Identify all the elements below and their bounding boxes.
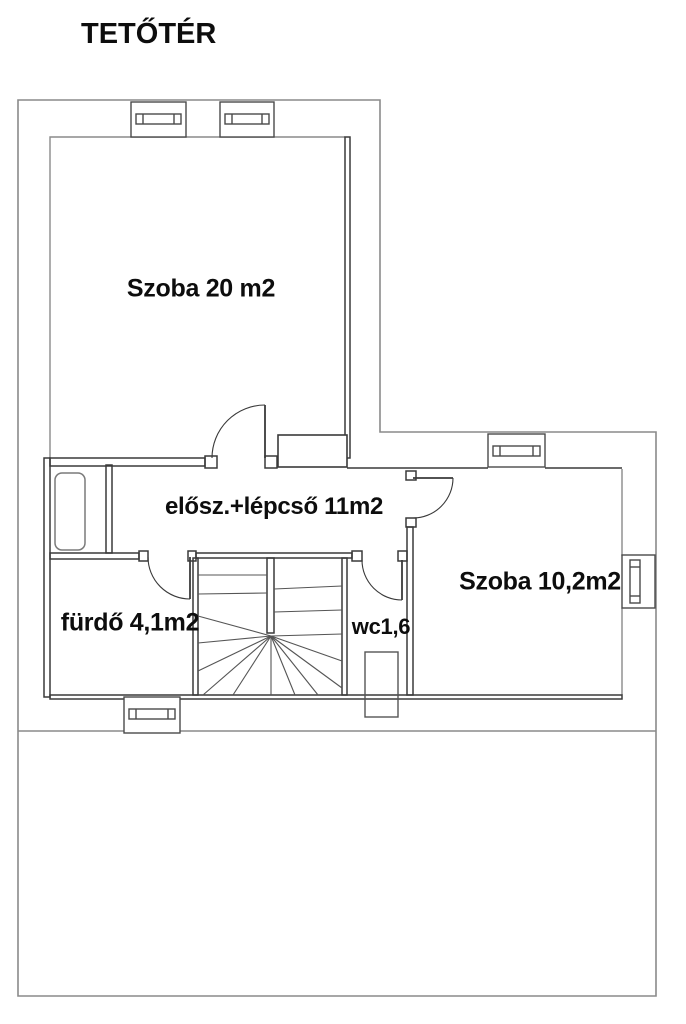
room-label-szoba102: Szoba 10,2m2 (459, 568, 621, 597)
roof-window-top-left (131, 102, 186, 137)
door-furdo (148, 557, 190, 599)
floor-plan: TETŐTÉR Szoba 20 m2 elősz.+lépcső 11m2 S… (0, 0, 686, 1024)
room-label-szoba20: Szoba 20 m2 (127, 275, 275, 304)
window-szoba102-top (488, 434, 545, 467)
room-label-wc: wc1,6 (352, 614, 410, 640)
plan-title: TETŐTÉR (81, 18, 216, 51)
window-szoba102-right (622, 555, 655, 608)
door-wc (362, 560, 402, 600)
roof-window-top-right (220, 102, 274, 137)
outer-boundary (18, 100, 656, 996)
door-szoba102 (413, 478, 453, 518)
wardrobe-fixture (55, 473, 85, 550)
door-szoba20 (212, 405, 265, 458)
room-label-eloszoba: elősz.+lépcső 11m2 (165, 493, 383, 521)
room-label-furdo: fürdő 4,1m2 (61, 609, 199, 638)
staircase (198, 575, 342, 695)
wc-shaft-fixture (365, 652, 398, 717)
chimney-block (278, 435, 347, 467)
window-furdo-bottom (124, 697, 180, 733)
